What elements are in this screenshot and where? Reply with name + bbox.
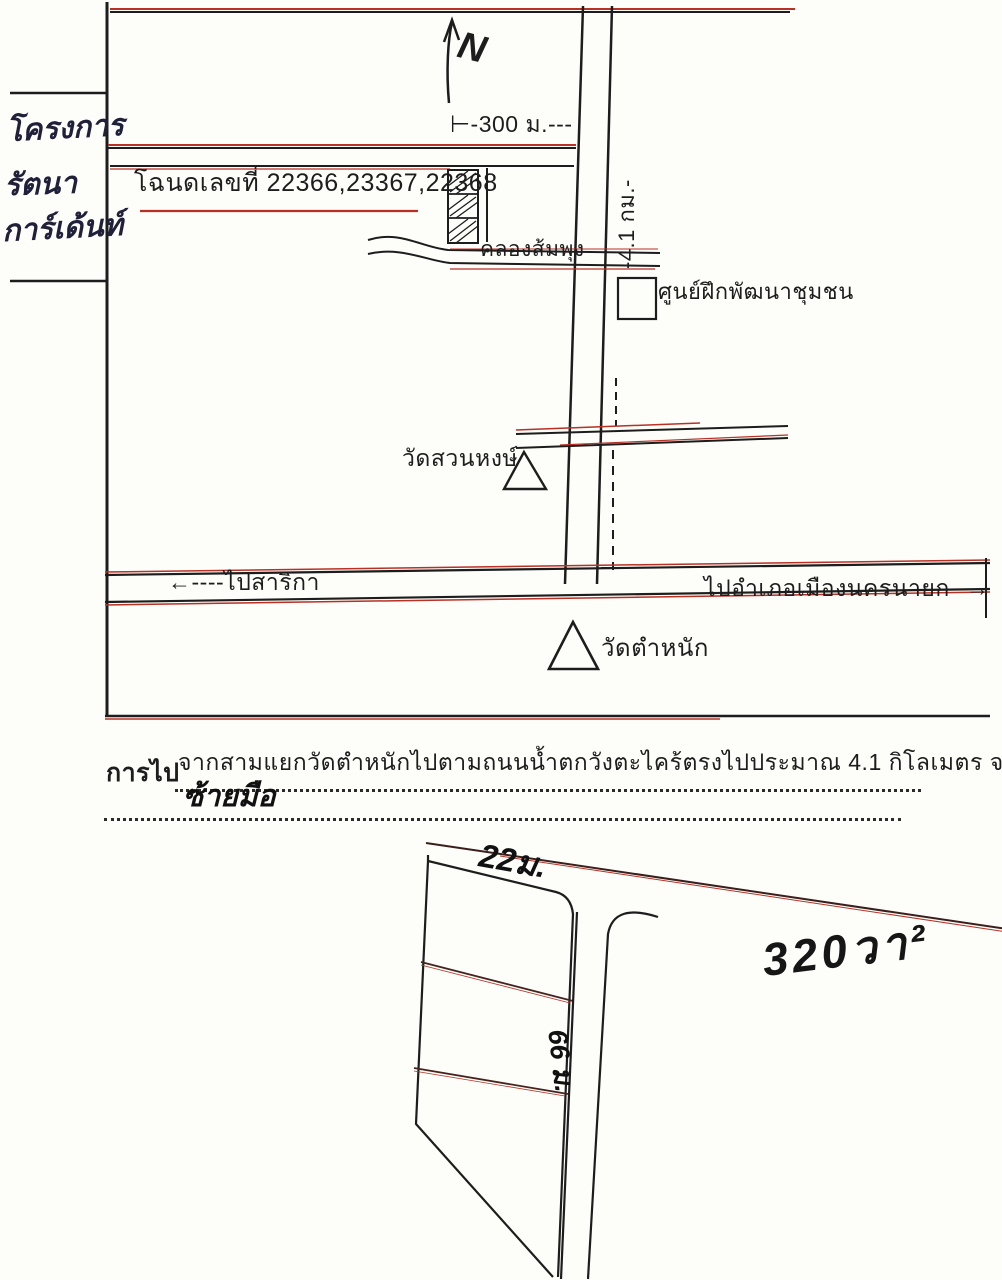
directions-dotted-line-1 xyxy=(175,789,921,792)
left-side-note: ซ้ายมือ xyxy=(183,780,276,813)
distance-km-label: -4.1 กม.- xyxy=(615,124,639,324)
wat-tamnak-label: วัดตำหนัก xyxy=(601,636,709,662)
deed-number-label: โฉนดเลขที่ 22366,23367,22368 xyxy=(134,170,498,198)
road-vertical-right-line xyxy=(597,6,612,584)
sketch-divider-2 xyxy=(414,1068,568,1094)
crossroad-lower xyxy=(516,438,788,448)
margin-note-line1: โครงการ xyxy=(5,109,125,148)
to-sarika-label: ←----ไปสาริกา xyxy=(168,570,320,595)
margin-note-line2: รัตนา xyxy=(3,167,77,203)
crossroad-upper xyxy=(516,426,788,434)
road-vertical-left-line xyxy=(565,6,583,584)
margin-note-line3: การ์เด้นท์ xyxy=(1,209,124,248)
directions-field-label: การไป xyxy=(106,760,180,788)
north-arrow-shaft xyxy=(448,22,452,103)
scanned-map-page: โครงการ รัตนา การ์เด้นท์ N ⊢-300 ม.--- โ… xyxy=(0,0,1002,1280)
sketch-road-right-line xyxy=(588,913,658,1279)
training-center-label: ศูนย์ฝึกพัฒนาชุมชน xyxy=(658,280,854,304)
wat-tamnak-triangle xyxy=(549,622,598,669)
sketch-divider-2-red xyxy=(414,1071,565,1096)
directions-dotted-line-2 xyxy=(104,818,901,821)
to-mueang-nakhon-nayok-label: ไปอำเภอเมืองนครนายก--→ xyxy=(704,576,990,601)
canal-label: คลองส้มพุง xyxy=(480,238,585,261)
scale-label: ⊢-300 ม.--- xyxy=(450,112,573,137)
directions-text: จากสามแยกวัดตำหนักไปตามถนนน้ำตกวังตะไคร้… xyxy=(178,750,1002,775)
wat-suan-hong-label: วัดสวนหงษ์ xyxy=(402,446,518,471)
